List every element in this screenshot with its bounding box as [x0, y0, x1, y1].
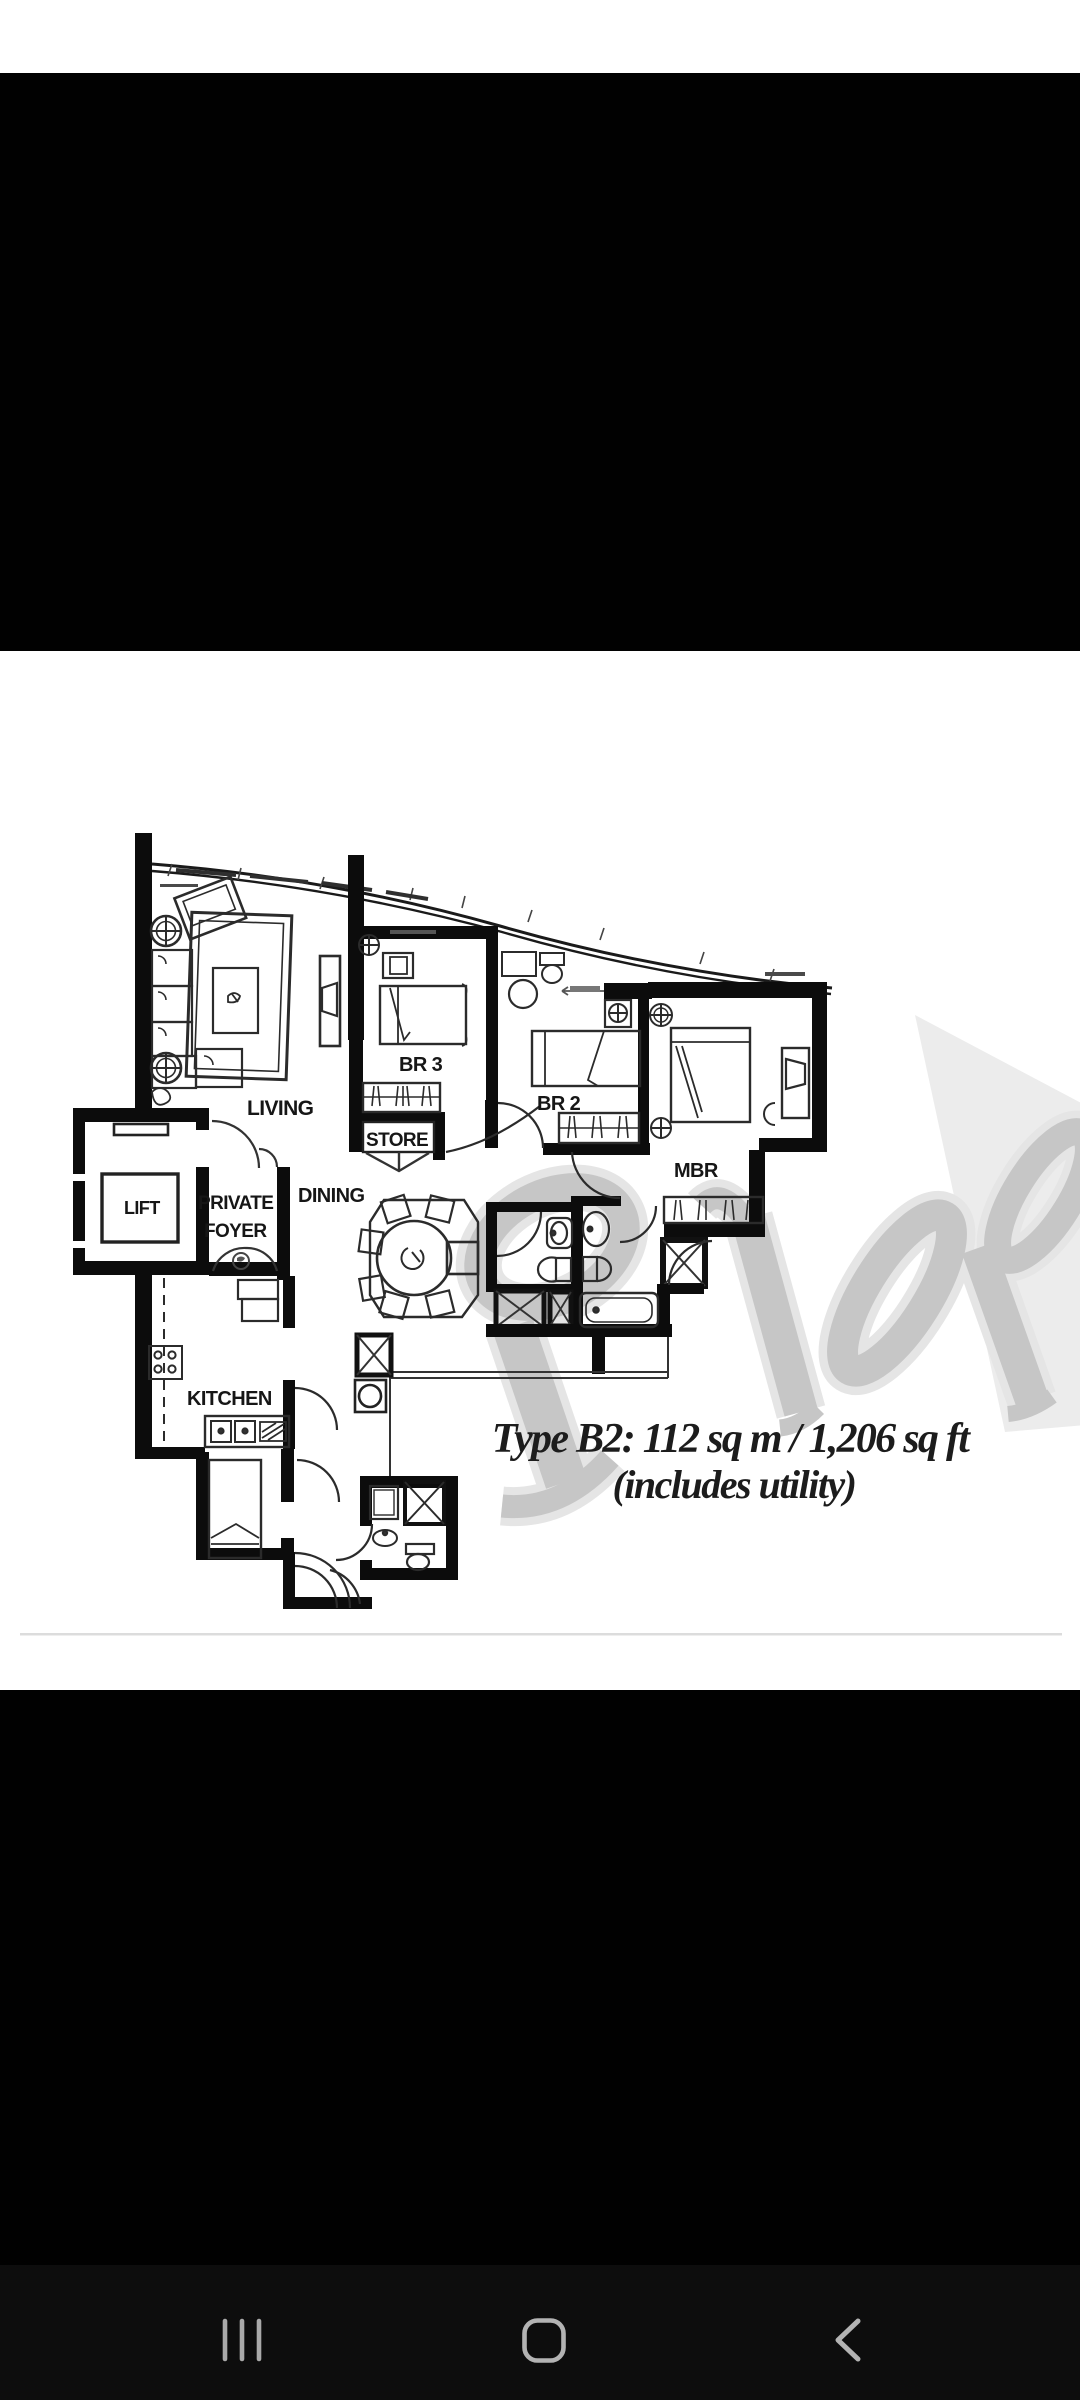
- svg-text:MBR: MBR: [674, 1160, 719, 1182]
- svg-text:(includes utility): (includes utility): [613, 1462, 856, 1507]
- svg-text:FOYER: FOYER: [204, 1221, 267, 1242]
- svg-text:DINING: DINING: [298, 1185, 364, 1207]
- svg-text:BR 3: BR 3: [399, 1054, 443, 1076]
- svg-text:LIVING: LIVING: [247, 1097, 314, 1120]
- svg-text:BR 2: BR 2: [537, 1093, 581, 1115]
- svg-text:Type B2: 112 sq m / 1,206 sq f: Type B2: 112 sq m / 1,206 sq ft: [492, 1416, 972, 1462]
- svg-text:PRIVATE: PRIVATE: [198, 1193, 273, 1214]
- svg-text:STORE: STORE: [366, 1130, 428, 1151]
- svg-text:KITCHEN: KITCHEN: [187, 1388, 272, 1410]
- svg-text:LIFT: LIFT: [124, 1198, 160, 1218]
